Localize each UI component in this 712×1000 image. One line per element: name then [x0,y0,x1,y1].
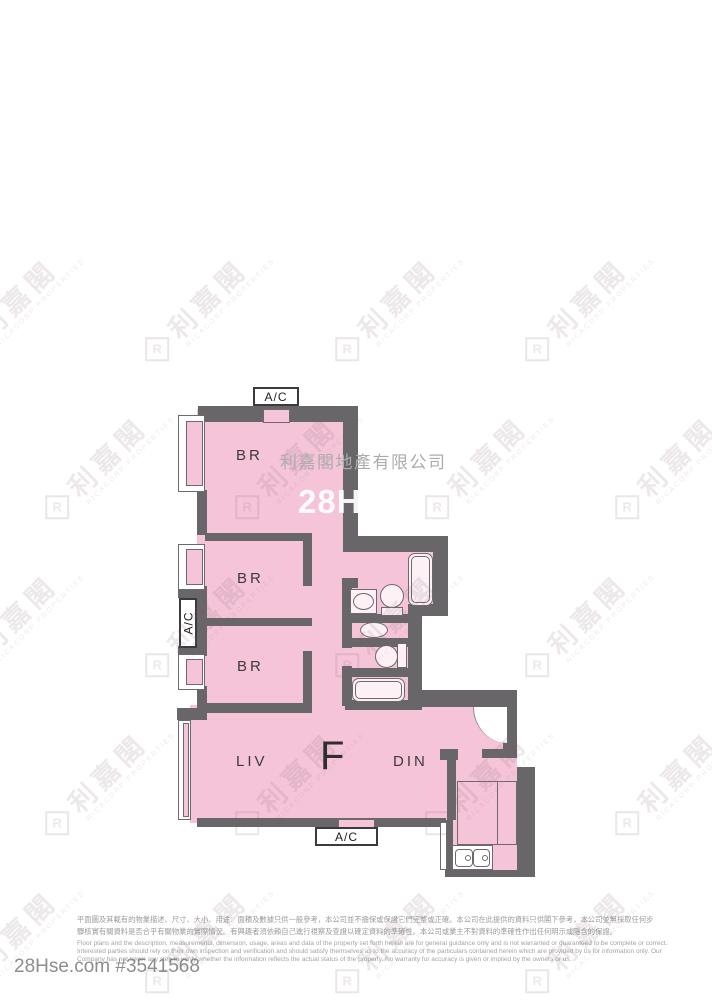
bathtub-vertical [408,553,433,606]
site-watermark: 28Hse [298,483,400,521]
watermark-brand-text: 利嘉閣 [633,412,712,503]
window-kitchen [440,822,447,870]
ricacorp-watermark: R利嘉閣RICACORP PROPERTIES [514,547,657,690]
wall-kitchen-right [517,767,535,877]
wall-din-top [410,690,517,707]
ricacorp-logo-icon: R [335,337,359,361]
watermark-brand-text: 利嘉閣 [543,570,634,661]
ricacorp-watermark: R利嘉閣RICACORP PROPERTIES [324,231,467,374]
wall-din-kitchen-divider [447,758,456,820]
bay-window-br2 [178,544,205,590]
toilet-lower-tank [397,643,407,668]
wall-liv-bottom [197,818,446,827]
watermark-brand-subtext: RICACORP PROPERTIES [376,257,467,348]
sink-drain-left [465,855,471,861]
watermark-brand-subtext: RICACORP PROPERTIES [86,415,177,506]
ricacorp-logo-icon: R [145,653,169,677]
ac-bottom-label: A/C [335,830,358,844]
unit-label: F [320,734,344,779]
watermark-brand-text: 利嘉閣 [63,412,154,503]
wall-bath-right-upper [433,536,448,612]
watermark-brand-text: 利嘉閣 [443,412,534,503]
watermark-brand-text: 利嘉閣 [633,728,712,819]
toilet-upper [380,584,404,608]
bedroom3-label: BR [237,658,264,675]
ricacorp-watermark: R利嘉閣RICACORP PROPERTIES [0,547,87,690]
ricacorp-watermark: R利嘉閣RICACORP PROPERTIES [514,231,657,374]
company-watermark: 利嘉閣地產有限公司 [280,448,447,473]
bay-window-br1 [178,415,205,492]
bedroom2-label: BR [237,570,264,587]
ricacorp-logo-icon: R [45,811,69,835]
washbasin-upper [350,589,377,614]
ricacorp-logo-icon: R [615,495,639,519]
ricacorp-watermark: R利嘉閣RICACORP PROPERTIES [0,231,87,374]
floorplan-page: A/C A/C A/C BR BR BR LIV DIN F 利嘉閣地產有限公司… [0,0,712,1000]
living-label: LIV [236,753,268,770]
ac-top-label: A/C [264,390,287,404]
ricacorp-logo-icon: R [525,337,549,361]
ricacorp-logo-icon: R [45,495,69,519]
ricacorp-watermark: R利嘉閣RICACORP PROPERTIES [604,389,712,532]
disclaimer-cn-line1: 平面圖及其載有的物業描述、尺寸、大小、用途、面積及數據只供一般參考，本公司並不擔… [77,915,677,925]
dining-label: DIN [393,753,428,770]
window-living [178,720,191,820]
ricacorp-watermark: R利嘉閣RICACORP PROPERTIES [0,863,87,1000]
bathtub-horizontal [352,678,405,702]
toilet-upper-tank [381,607,403,616]
watermark-brand-subtext: RICACORP PROPERTIES [0,257,87,348]
bedroom1-label: BR [236,447,263,464]
ricacorp-watermark: R利嘉閣RICACORP PROPERTIES [34,389,177,532]
watermark-brand-subtext: RICACORP PROPERTIES [656,731,712,822]
disclaimer-en-line2: Interested parties should rely on their … [77,948,677,955]
ricacorp-logo-icon: R [525,653,549,677]
toilet-lower [375,645,398,668]
ac-unit-top: A/C [253,387,299,406]
ricacorp-logo-icon: R [425,495,449,519]
watermark-brand-subtext: RICACORP PROPERTIES [186,257,277,348]
wall-bath-divider3 [345,668,413,677]
watermark-brand-text: 利嘉閣 [353,254,444,345]
disclaimer-cn-line2: 驟核實有關資料是否合乎有關物業的實際情況。有興趣者須依賴自己進行視察及查證以確定… [77,927,677,937]
ac-unit-bottom: A/C [315,827,378,846]
wall-divider-br1-br2 [205,533,312,541]
kitchen-sink [452,845,493,870]
wall-br3-bottom [202,703,312,713]
wall-kitchen-bottom [445,870,535,877]
ricacorp-watermark: R利嘉閣RICACORP PROPERTIES [134,231,277,374]
watermark-brand-subtext: RICACORP PROPERTIES [656,415,712,506]
watermark-brand-subtext: RICACORP PROPERTIES [0,573,87,664]
watermark-brand-subtext: RICACORP PROPERTIES [466,415,557,506]
ac-unit-left: A/C [179,598,197,648]
bay-window-br3 [178,654,205,690]
disclaimer-en-line1: Floor plans and the description, measure… [77,940,677,947]
ricacorp-watermark: R利嘉閣RICACORP PROPERTIES [604,705,712,848]
wall-br3-right [303,651,312,707]
watermark-brand-subtext: RICACORP PROPERTIES [566,573,657,664]
ricacorp-logo-icon: R [615,811,639,835]
kitchen-counter [457,781,517,845]
wall-br2-right [303,541,312,586]
watermark-brand-text: 利嘉閣 [543,254,634,345]
watermark-brand-text: 利嘉閣 [0,570,64,661]
watermark-brand-text: 利嘉閣 [163,254,254,345]
ac-platform-top [263,409,290,423]
watermark-brand-text: 利嘉閣 [0,254,64,345]
ac-left-label: A/C [181,611,195,634]
ricacorp-watermark: R利嘉閣RICACORP PROPERTIES [34,705,177,848]
listing-id: 28Hse.com #3541568 [14,956,200,978]
wall-left-br1-stub [197,490,207,535]
wall-br1-right [343,406,358,552]
watermark-brand-text: 利嘉閣 [63,728,154,819]
wall-divider-br2-br3 [202,618,312,626]
watermark-brand-subtext: RICACORP PROPERTIES [566,257,657,348]
ricacorp-logo-icon: R [335,969,359,993]
watermark-brand-subtext: RICACORP PROPERTIES [86,731,177,822]
ricacorp-logo-icon: R [525,969,549,993]
wall-kitchen-top [482,749,517,758]
ricacorp-logo-icon: R [145,337,169,361]
washbasin-mid [360,622,388,638]
sink-drain-right [482,855,488,861]
